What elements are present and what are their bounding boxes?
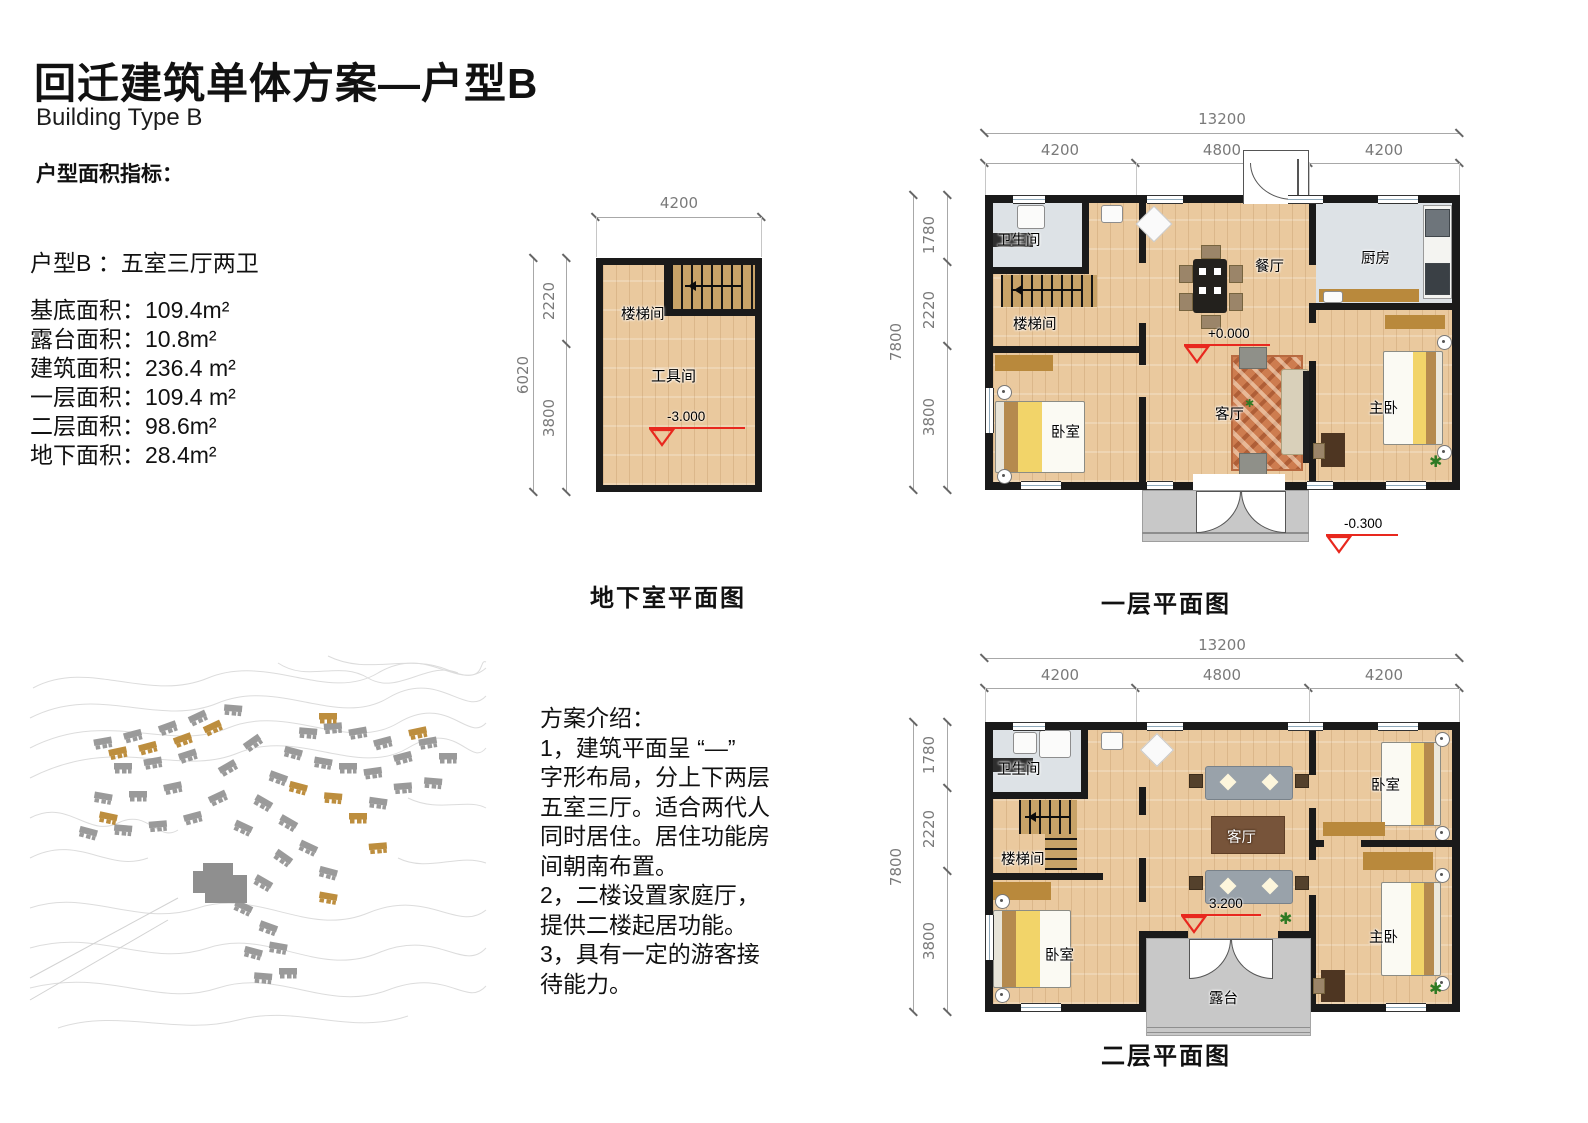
level-triangle-icon	[1184, 346, 1210, 364]
area-item: 地下面积：28.4m²	[30, 441, 236, 470]
nightstand	[997, 385, 1012, 400]
door-swing-arc	[1250, 163, 1293, 200]
dim-line	[947, 195, 948, 490]
toilet	[1013, 732, 1037, 754]
contour-lines	[30, 656, 486, 1028]
dim-label: 4200	[639, 194, 719, 212]
dining-chair	[1179, 293, 1193, 311]
site-map	[28, 648, 488, 1038]
side-table	[1189, 774, 1203, 788]
dim-line	[913, 722, 914, 1012]
nightstand	[1435, 732, 1450, 747]
dim-line	[985, 133, 1460, 134]
nightstand	[997, 469, 1012, 484]
dim-label: 4200	[1344, 141, 1424, 159]
wall-segment	[671, 309, 755, 316]
room-label-master: 主卧	[1369, 926, 1398, 947]
wall-segment	[1316, 303, 1452, 310]
dim-label: 4200	[1020, 666, 1100, 684]
dim-ext	[985, 163, 986, 195]
room-label-living: 客厅	[1215, 403, 1244, 424]
dim-label: 3800	[920, 918, 938, 964]
area-item: 建筑面积：236.4 m²	[30, 354, 236, 383]
dining-chair	[1229, 265, 1243, 283]
window	[1021, 481, 1061, 490]
dim-ext	[1136, 688, 1137, 722]
window	[1288, 195, 1323, 204]
dim-label: 13200	[1182, 636, 1262, 654]
dining-chair	[1201, 245, 1221, 259]
page-subtitle: Building Type B	[36, 104, 202, 132]
dim-label: 1780	[920, 212, 938, 258]
wall-segment	[993, 267, 1089, 274]
desk-chair	[1313, 443, 1325, 459]
window	[1021, 1003, 1061, 1012]
dim-label: 2220	[920, 287, 938, 333]
dim-label: 7800	[887, 844, 905, 890]
dining-table	[1193, 259, 1227, 313]
room-label-living: 客厅	[1227, 826, 1256, 847]
room-label-terrace: 露台	[1209, 987, 1238, 1008]
wall-segment	[1309, 730, 1316, 775]
nightstand	[1437, 335, 1452, 350]
side-table	[1189, 876, 1203, 890]
window	[1013, 722, 1045, 731]
floor2-caption: 二层平面图	[1066, 1036, 1266, 1071]
wall-segment	[1278, 931, 1309, 938]
room-label-kitchen: 厨房	[1361, 247, 1390, 268]
room-label-dining: 餐厅	[1255, 255, 1284, 276]
side-table	[1295, 774, 1309, 788]
level-triangle-icon	[649, 429, 675, 447]
nightstand	[1435, 826, 1450, 841]
dim-line	[596, 217, 762, 218]
stair-direction-arrow	[1011, 289, 1081, 291]
dim-ext	[1309, 163, 1310, 195]
terrace: 露台	[1146, 938, 1311, 1036]
window	[1147, 481, 1173, 490]
sofa	[1205, 766, 1293, 800]
level-value: 3.200	[1209, 896, 1243, 911]
wardrobe	[1323, 822, 1385, 836]
wardrobe	[995, 355, 1053, 371]
dim-label: 1780	[920, 732, 938, 778]
water-heater	[1101, 205, 1123, 223]
door-leaf	[1196, 491, 1241, 533]
water-heater	[1101, 732, 1123, 750]
floor1-plan: 卫生间 楼梯间 卧室 餐厅 +0.000 客厅 ✱ 厨房	[985, 195, 1460, 490]
wall-segment	[1309, 303, 1316, 323]
dim-line	[985, 658, 1460, 659]
dim-line	[947, 722, 948, 1012]
dim-line	[985, 163, 1460, 164]
dim-ext	[596, 217, 597, 257]
door-leaf	[1241, 491, 1286, 533]
stair-direction-arrow	[685, 285, 741, 287]
plant-icon: ✱	[1279, 912, 1292, 928]
area-item: 露台面积：10.8m²	[30, 325, 236, 354]
dim-label: 7800	[887, 319, 905, 365]
wardrobe	[1363, 852, 1433, 870]
room-label-stair: 楼梯间	[1013, 313, 1057, 334]
dim-ext	[1136, 163, 1137, 195]
dim-label: 3800	[540, 395, 558, 441]
room-label-stair: 楼梯间	[621, 303, 665, 324]
entry-porch	[1142, 490, 1309, 542]
level-value: -0.300	[1344, 516, 1382, 531]
window	[985, 915, 994, 960]
room-label-master: 主卧	[1369, 397, 1398, 418]
basement-caption: 地下室平面图	[568, 578, 768, 613]
dim-label: 13200	[1182, 110, 1262, 128]
wall-segment	[993, 792, 1088, 799]
dim-label: 6020	[514, 352, 532, 398]
room-label-bedroom-right: 卧室	[1371, 774, 1400, 795]
door-opening	[1193, 474, 1285, 490]
area-item: 一层面积：109.4 m²	[30, 383, 236, 412]
room-label-bedroom: 卧室	[1051, 421, 1080, 442]
area-item: 二层面积：98.6m²	[30, 412, 236, 441]
wall-segment	[1316, 840, 1324, 847]
nightstand	[995, 894, 1010, 909]
wall-segment	[993, 873, 1103, 880]
dim-label: 4200	[1020, 141, 1100, 159]
stove	[1425, 263, 1450, 295]
floor1-caption: 一层平面图	[1066, 584, 1266, 619]
page-title: 回迁建筑单体方案—户型B	[34, 50, 538, 111]
dim-line	[913, 195, 914, 490]
wall-segment	[1139, 323, 1146, 365]
wall-segment	[1082, 203, 1089, 267]
room-label-tool: 工具间	[651, 365, 696, 386]
plant-icon: ✱	[1429, 982, 1442, 998]
nightstand	[995, 988, 1010, 1003]
dim-line	[985, 688, 1460, 689]
area-item: 基底面积：109.4m²	[30, 296, 236, 325]
window	[1288, 722, 1323, 731]
desk-chair	[1313, 978, 1325, 994]
kitchen-sink	[1323, 291, 1343, 303]
washer	[1039, 730, 1071, 758]
toilet	[1017, 205, 1045, 229]
fridge	[1425, 209, 1450, 237]
area-index-heading: 户型面积指标：	[36, 158, 183, 188]
window	[1147, 195, 1183, 204]
window	[1147, 722, 1183, 731]
level-triangle-icon	[1326, 536, 1352, 554]
dining-chair	[1229, 293, 1243, 311]
window	[1307, 481, 1333, 490]
lamp-decor	[1140, 733, 1174, 767]
floor2-plan: 卫生间 楼梯间 卧室 客厅 3.200 ✱ 露台 卧室	[985, 722, 1460, 1012]
dim-ext	[1309, 688, 1310, 722]
door-leaf	[1231, 939, 1273, 979]
dim-label: 4200	[1344, 666, 1424, 684]
stairs	[1045, 834, 1077, 870]
window	[1013, 195, 1045, 204]
dim-label: 2220	[540, 278, 558, 324]
plant-icon: ✱	[1429, 455, 1442, 471]
window	[985, 388, 994, 433]
dim-ext	[761, 217, 762, 257]
room-label-bedroom-left: 卧室	[1045, 944, 1074, 965]
scheme-intro-text: 方案介绍： 1，建筑平面呈 “—” 字形布局，分上下两层 五室三厅。适合两代人 …	[540, 704, 825, 999]
wall-segment	[993, 346, 1139, 353]
wall-segment	[1361, 840, 1452, 847]
side-table	[1295, 876, 1309, 890]
dim-line	[533, 258, 534, 492]
plant-icon: ✱	[1245, 399, 1254, 410]
armchair	[1239, 453, 1267, 475]
dim-label: 3800	[920, 394, 938, 440]
room-label-stair: 楼梯间	[1001, 848, 1045, 869]
wall-segment	[664, 265, 671, 316]
basement-plan: 楼梯间 工具间 -3.000	[596, 258, 762, 492]
nightstand	[1435, 868, 1450, 883]
wall-segment	[1309, 203, 1316, 265]
area-list: 基底面积：109.4m² 露台面积：10.8m² 建筑面积：236.4 m² 一…	[30, 296, 236, 470]
wall-segment	[1139, 931, 1146, 1004]
wardrobe	[1385, 315, 1445, 329]
window	[1378, 195, 1418, 204]
door-leaf	[1189, 939, 1231, 979]
level-triangle-icon	[1181, 916, 1207, 934]
wall-segment	[1309, 808, 1316, 860]
dim-ext	[1459, 163, 1460, 195]
wall-segment	[1139, 397, 1146, 482]
window	[1386, 481, 1426, 490]
armchair	[1239, 347, 1267, 369]
dim-line	[566, 258, 567, 492]
door-leaf	[1297, 159, 1299, 199]
dim-ext	[1459, 688, 1460, 722]
dim-ext	[985, 688, 986, 722]
dining-chair	[1179, 265, 1193, 283]
wall-segment	[1309, 361, 1316, 482]
level-value: -3.000	[667, 409, 705, 424]
room-label-bath: 卫生间	[997, 758, 1041, 779]
window	[1386, 1003, 1426, 1012]
level-value: +0.000	[1208, 326, 1250, 341]
room-label-bath: 卫生间	[997, 229, 1041, 250]
stair-direction-arrow	[1025, 816, 1069, 818]
wall-segment	[1081, 730, 1088, 792]
wall-segment	[1139, 787, 1146, 815]
window	[1378, 722, 1418, 731]
wall-segment	[1139, 858, 1146, 902]
dim-label: 2220	[920, 806, 938, 852]
site-building-central	[193, 863, 247, 903]
dim-label: 4800	[1182, 666, 1262, 684]
unit-type-line: 户型B ：五室三厅两卫	[30, 244, 259, 278]
